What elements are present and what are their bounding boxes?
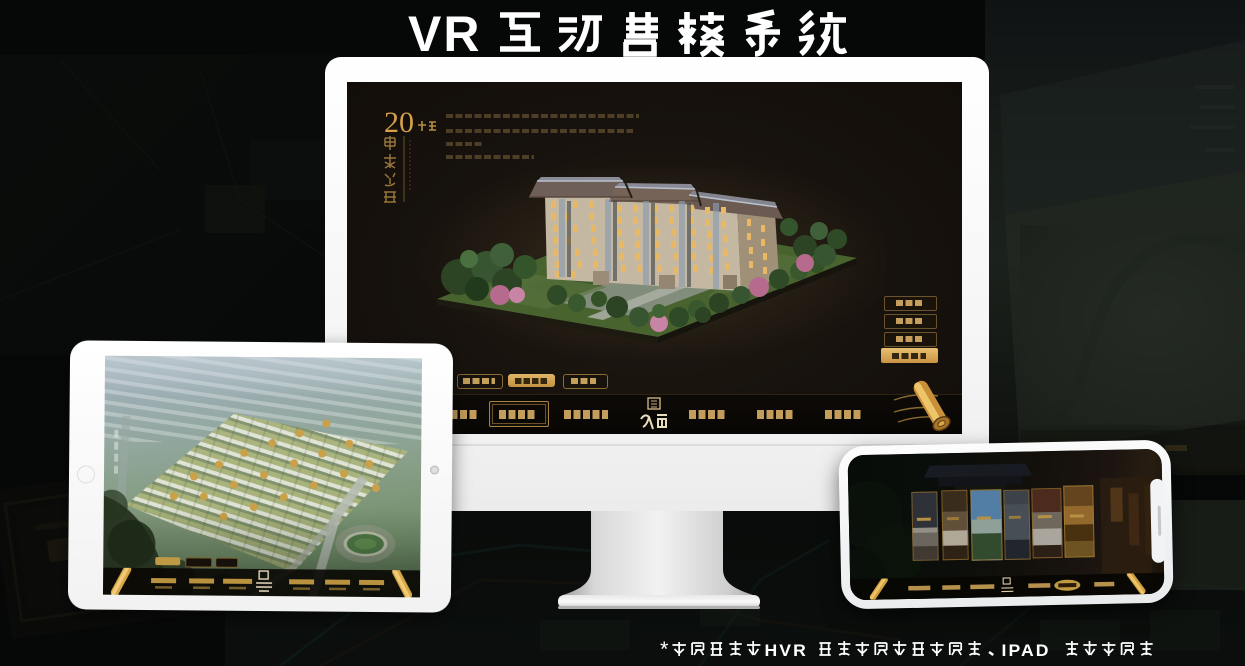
svg-text:*: *: [660, 638, 668, 661]
svg-text:VR: VR: [408, 6, 481, 58]
svg-text:HVR: HVR: [765, 640, 808, 660]
svg-text:IPAD: IPAD: [1002, 640, 1051, 660]
